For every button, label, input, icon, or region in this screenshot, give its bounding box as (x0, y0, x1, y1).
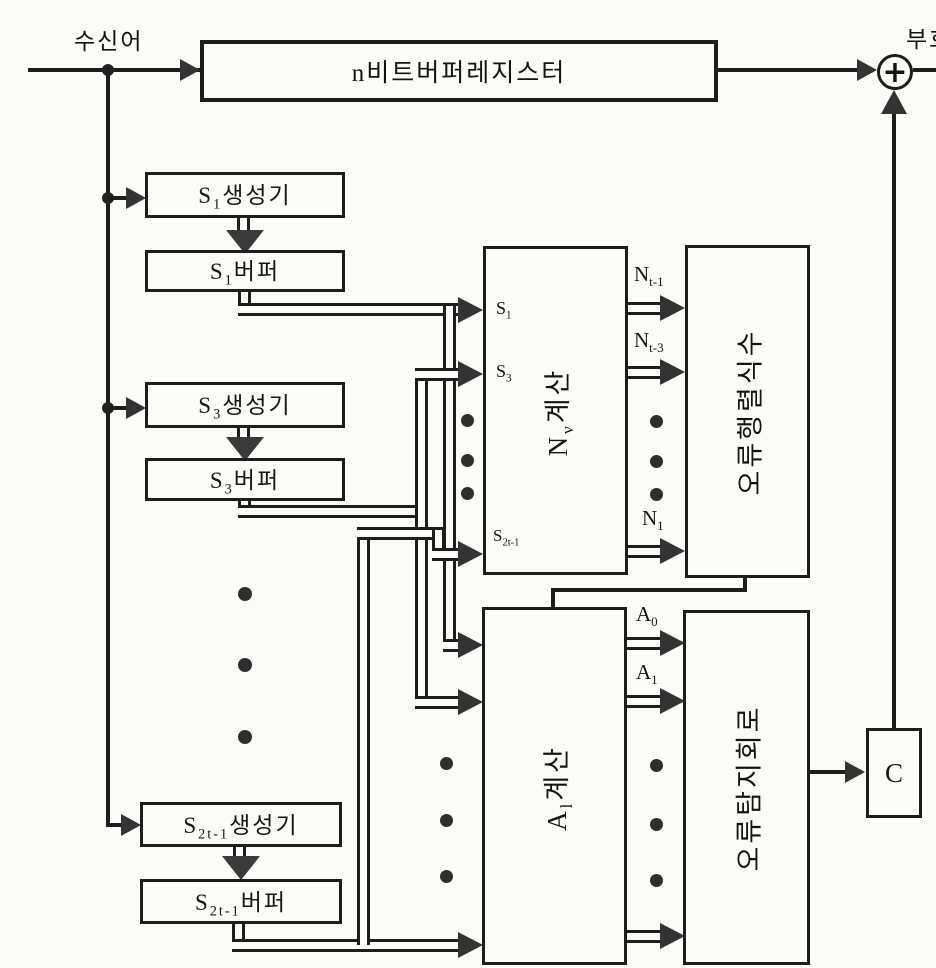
arrowhead-s2t1-into-acalc (458, 932, 483, 958)
output-label-nt1: Nt-1 (634, 262, 664, 290)
ellipsis-dot (238, 658, 252, 672)
s1-branch-bus-down (443, 306, 456, 652)
row-connector-wire (551, 588, 747, 592)
s3-generator-label: S3생성기 (198, 386, 291, 424)
output-label-nt3: Nt-3 (634, 328, 664, 356)
c-unit-label: C (885, 758, 903, 789)
a-last-output-bus (627, 930, 661, 943)
s3-bus-into-ncalc (415, 368, 463, 381)
feed-wire-s1 (108, 196, 128, 200)
ellipsis-dot (440, 870, 453, 883)
input-wire (28, 68, 200, 72)
feed-wire-s3 (108, 406, 128, 410)
detector-to-c-wire (810, 770, 846, 774)
input-label-s2t1: S2t-1 (493, 526, 519, 548)
codeword-output-wire (913, 68, 936, 72)
ellipsis-dot (461, 487, 474, 500)
s3-bus-horizontal (238, 505, 428, 518)
s2t1-buffer-label: S2t-1버퍼 (195, 883, 287, 921)
arrowhead-into-s1-generator (126, 187, 146, 209)
s2t1-buffer-box: S2t-1버퍼 (140, 879, 342, 924)
received-word-feed-line (106, 68, 110, 827)
s3-branch-bus-into-acalc (415, 696, 463, 709)
s3-buffer-box: S3버퍼 (145, 458, 345, 501)
ellipsis-dot (461, 454, 474, 467)
arrowhead-s1-into-ncalc (458, 297, 483, 323)
s3-generator-box: S3생성기 (145, 382, 345, 428)
codeword-label: 부호 (906, 20, 936, 54)
plus-icon: + (882, 55, 907, 90)
input-label-s3: S3 (496, 361, 512, 385)
error-determinant-label: 오류행렬식수 (729, 328, 768, 495)
c-to-adder-wire (892, 108, 896, 728)
s2t1-riser-bus (357, 530, 370, 945)
nt3-output-bus (628, 366, 662, 379)
arrowhead-up-into-adder (881, 90, 907, 114)
s1-buffer-label: S1버퍼 (210, 252, 280, 290)
register-output-wire (718, 68, 858, 72)
a0-output-bus (627, 637, 661, 650)
s1-buffer-box: S1버퍼 (145, 250, 345, 292)
s2t1-generator-label: S2t-1생성기 (183, 806, 298, 844)
arrowhead-s3-into-ncalc (458, 361, 483, 387)
s3-buffer-label: S3버퍼 (210, 461, 280, 499)
arrowhead-a-last (660, 923, 685, 949)
a-calc-label: Al계산 (535, 745, 577, 831)
error-detector-label: 오류탐지회로 (728, 704, 767, 871)
arrowhead-into-acalc-2 (458, 689, 483, 715)
c-unit-box: C (866, 728, 922, 818)
arrowhead-n1 (660, 538, 685, 564)
arrowhead-into-adder (857, 59, 877, 81)
s1-generator-label: S1생성기 (198, 176, 291, 214)
arrowhead-a0 (660, 630, 685, 656)
ellipsis-dot (650, 455, 663, 468)
ellipsis-dot (238, 587, 252, 601)
arrowhead-into-acalc-1 (458, 632, 483, 658)
input-label-s1: S1 (496, 298, 512, 322)
ellipsis-dot (238, 730, 252, 744)
ellipsis-dot (650, 818, 663, 831)
n-bit-buffer-register-box: n비트버퍼레지스터 (200, 40, 718, 102)
xor-adder-node: + (877, 54, 913, 90)
ellipsis-dot (650, 488, 663, 501)
output-label-a0: A0 (636, 602, 658, 630)
ellipsis-dot (650, 415, 663, 428)
arrowhead-into-c (845, 761, 865, 783)
arrowhead-into-register (180, 59, 200, 81)
s2t1-generator-box: S2t-1생성기 (140, 802, 342, 847)
arrowhead-nt3 (660, 359, 685, 385)
decoder-block-diagram: 수신어 n비트버퍼레지스터 + 부호 S1생성기 S1버퍼 S3생성기 S3버퍼… (0, 0, 936, 968)
arrowhead-a1 (660, 688, 685, 714)
n1-output-bus (628, 545, 662, 558)
s2t1-bus-horizontal (232, 939, 463, 952)
a1-output-bus (627, 695, 661, 708)
nt1-output-bus (628, 302, 662, 315)
arrowhead-s2t1-into-ncalc (458, 541, 483, 567)
row-connector-wire (551, 588, 555, 609)
s1-generator-box: S1생성기 (145, 172, 345, 218)
ellipsis-dot (440, 757, 453, 770)
ellipsis-dot (650, 759, 663, 772)
arrowhead-into-s3-generator (126, 397, 146, 419)
arrowhead-nt1 (660, 295, 685, 321)
ellipsis-dot (650, 874, 663, 887)
received-word-label: 수신어 (74, 22, 143, 56)
output-label-n1: N1 (642, 506, 664, 534)
block-arrow-down-s2t1 (222, 856, 260, 880)
ellipsis-dot (461, 414, 474, 427)
n-bit-buffer-register-label: n비트버퍼레지스터 (352, 53, 567, 89)
ellipsis-dot (440, 814, 453, 827)
s1-bus-horizontal (238, 303, 463, 316)
output-label-a1: A1 (636, 660, 658, 688)
n-calc-label: Nν계산 (536, 368, 578, 457)
arrowhead-into-s2t1-generator (121, 814, 141, 836)
